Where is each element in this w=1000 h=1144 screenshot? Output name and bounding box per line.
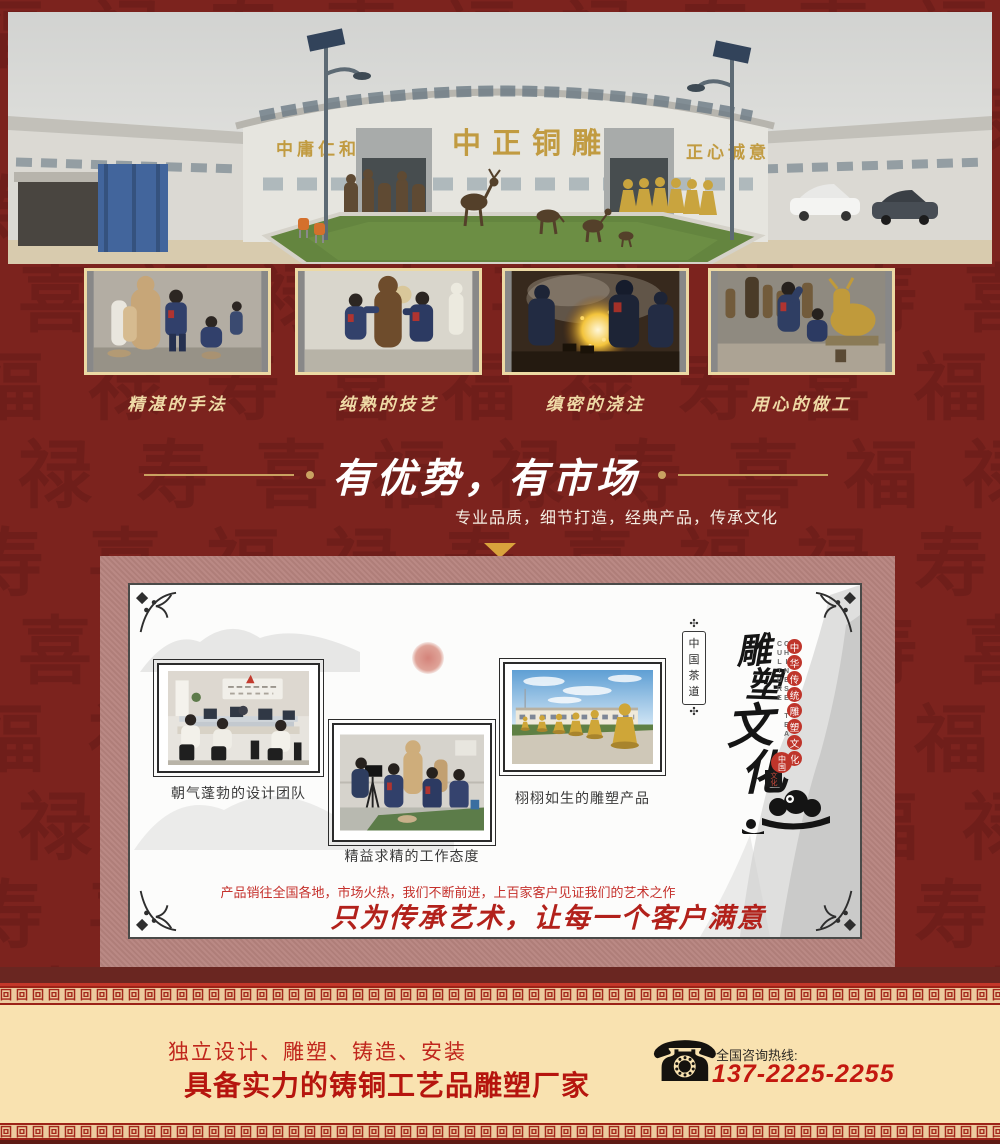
footer-headline: 具备实力的铸铜工艺品雕塑厂家 <box>184 1064 590 1104</box>
design-team-photo <box>157 663 320 773</box>
sign-left: 中庸仁和 <box>276 139 360 160</box>
advantage-heading-row: 有优势，有市场 <box>0 446 972 504</box>
card-caption-work-attitude: 精益求精的工作态度 <box>332 846 492 866</box>
cloud-motif <box>738 786 842 834</box>
advantage-subtitle: 专业品质，细节打造，经典产品，传承文化 <box>455 504 778 528</box>
circled-characters-column: 中华传统雕塑文化 <box>787 639 802 767</box>
factory-panorama-photo: 中庸仁和 中正铜雕 正心诚意 <box>8 12 992 264</box>
card-caption-design-team: 朝气蓬勃的设计团队 <box>157 783 320 803</box>
process-photo-finishing <box>295 268 482 375</box>
advantage-title: 有优势，有市场 <box>332 446 640 504</box>
maroon-band <box>0 967 1000 983</box>
process-caption-2: 纯熟的技艺 <box>295 390 482 415</box>
meander-border-top: 回回回回回回回回回回回回回回回回回回回回回回回回回回回回回回回回回回回回回回回回… <box>0 986 1000 1005</box>
meander-border-bottom: 回回回回回回回回回回回回回回回回回回回回回回回回回回回回回回回回回回回回回回回回… <box>0 1123 1000 1140</box>
process-photo-sculpting <box>84 268 271 375</box>
sign-center: 中正铜雕 <box>452 126 612 160</box>
bottom-edge-band <box>0 1140 1000 1144</box>
corner-flourish-top-right <box>815 589 859 633</box>
telephone-icon: ☎ <box>650 1034 720 1090</box>
plaque-text: 中国茶道 <box>682 631 706 705</box>
left-gold-line <box>144 474 294 476</box>
plaque-bottom-ornament: ✣ <box>682 706 706 718</box>
sign-right: 正心诚意 <box>686 142 770 163</box>
work-attitude-photo <box>332 723 492 842</box>
process-caption-3: 缜密的浇注 <box>502 390 689 415</box>
left-gold-dot <box>306 471 314 479</box>
process-photo-polishing <box>708 268 895 375</box>
page: 福禄寿喜福禄寿喜福禄寿喜福禄寿喜福禄寿喜福禄寿喜福禄寿喜福禄寿喜福禄寿喜福禄寿喜… <box>0 0 1000 1144</box>
seal-script-plaque: ✣ 中国茶道 ✣ <box>682 618 706 718</box>
process-photo-casting <box>502 268 689 375</box>
footer-services-line: 独立设计、雕塑、铸造、安装 <box>168 1036 467 1066</box>
red-round-seal: 中国 <box>771 752 792 773</box>
right-gold-dot <box>658 471 666 479</box>
hotline-phone-number[interactable]: 137-2225-2255 <box>712 1060 895 1089</box>
corner-flourish-top-left <box>133 589 177 633</box>
factory-scene: 中庸仁和 中正铜雕 正心诚意 <box>8 12 992 264</box>
plaque-top-ornament: ✣ <box>682 618 706 630</box>
sculpture-products-photo <box>503 662 662 772</box>
right-gold-line <box>678 474 828 476</box>
red-sun <box>412 642 444 674</box>
brand-slogan-calligraphy: 只为传承艺术，让每一个客户满意 <box>248 896 848 935</box>
card-caption-products: 栩栩如生的雕塑产品 <box>503 788 662 808</box>
process-caption-1: 精湛的手法 <box>84 390 271 415</box>
process-caption-4: 用心的做工 <box>708 390 895 415</box>
